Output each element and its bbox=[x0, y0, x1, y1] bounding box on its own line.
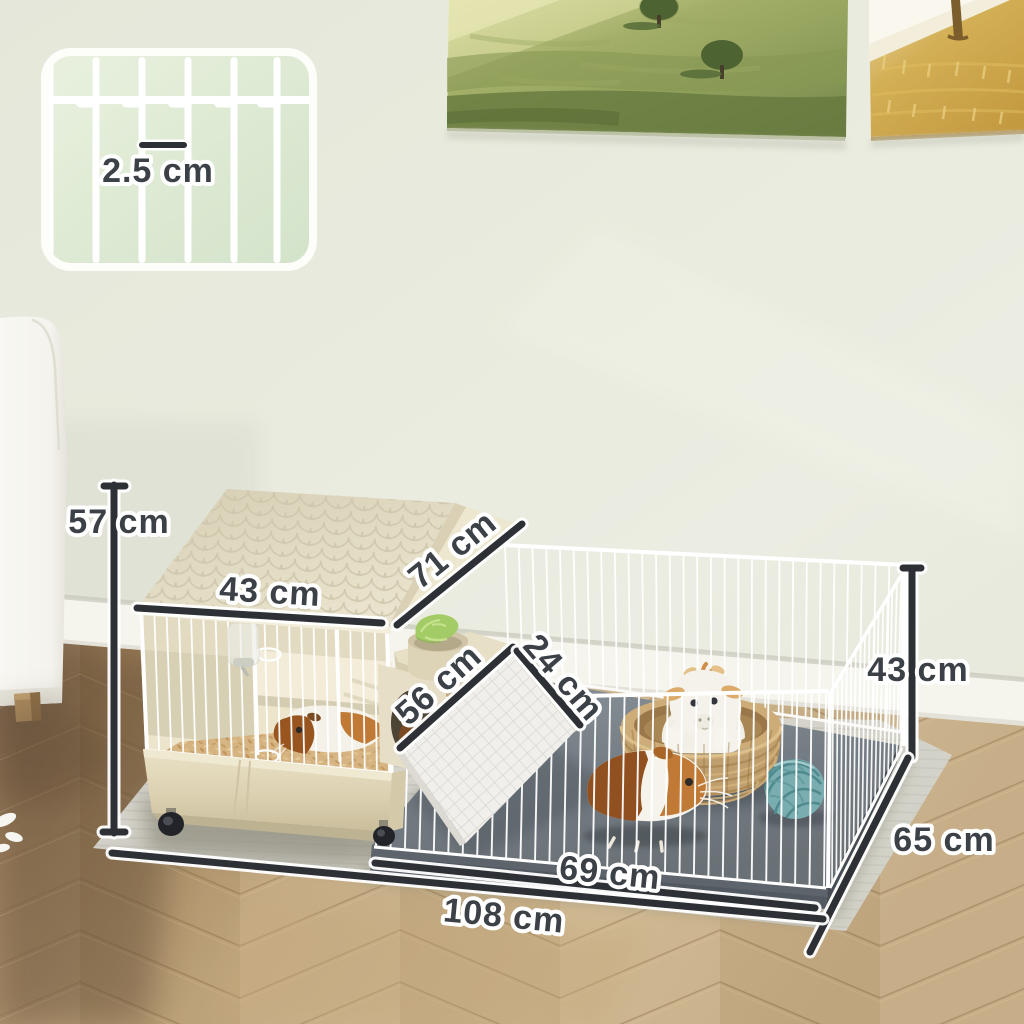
svg-text:65 cm: 65 cm bbox=[893, 821, 994, 859]
svg-text:57 cm: 57 cm bbox=[68, 503, 169, 541]
svg-text:43 cm: 43 cm bbox=[867, 651, 968, 689]
svg-text:2.5 cm: 2.5 cm bbox=[102, 152, 214, 190]
svg-text:43 cm: 43 cm bbox=[218, 570, 322, 614]
